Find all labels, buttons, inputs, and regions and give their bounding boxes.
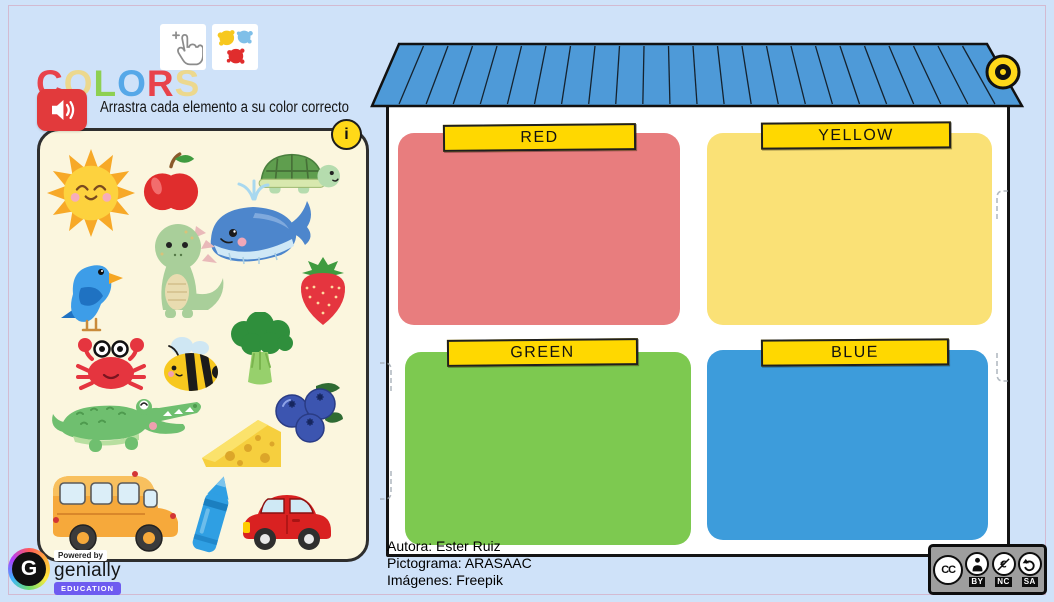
draggable-bus[interactable] [45,462,184,555]
zone-label-green: GREEN [447,338,638,367]
audio-button[interactable] [37,89,87,131]
cc-by-icon [965,552,989,576]
zone-label-green-text: GREEN [510,343,575,362]
credit-pictogram: Pictograma: ARASAAC [387,555,532,572]
wall-mark [376,468,396,504]
items-tray [37,128,369,562]
dropzone-yellow[interactable] [707,133,992,325]
zone-label-blue-text: BLUE [831,343,879,361]
genially-logo-letter: G [12,552,46,586]
zone-label-yellow: YELLOW [761,121,951,149]
draggable-crayon[interactable] [182,474,245,555]
draggable-cheese[interactable] [200,414,283,472]
draggable-crocodile[interactable] [47,382,209,460]
draggable-car[interactable] [238,482,337,553]
dropzone-green[interactable] [405,352,691,545]
zone-label-red: RED [443,123,636,152]
education-badge: EDUCATION [54,582,121,595]
instruction-text: Arrastra cada elemento a su color correc… [100,99,349,117]
dropzone-blue[interactable] [707,350,988,540]
cc-nc-icon: € [992,552,1016,576]
credit-author: Autora: Ester Ruiz [387,538,532,555]
credit-images: Imágenes: Freepik [387,572,532,589]
draggable-apple[interactable] [142,148,200,220]
genially-logo-mark: G [8,548,50,590]
info-button[interactable]: i [331,119,362,150]
paint-splats-icon [212,24,258,70]
cc-icon-text: CC [941,564,955,576]
genially-brand: genially [54,561,121,581]
dropzone-red[interactable] [398,133,680,325]
click-hand-icon [160,24,206,70]
house-roof [368,40,1028,110]
draggable-strawberry[interactable] [292,255,354,327]
wall-mark [992,186,1012,222]
draggable-sun[interactable] [47,147,135,239]
cc-sa-label: SA [1022,577,1038,587]
cc-license[interactable]: CC BY € NC SA [928,544,1047,595]
wall-mark [376,358,396,394]
cc-nc-label: NC [995,577,1012,587]
cc-icon: CC [933,555,963,585]
zone-label-yellow-text: YELLOW [818,126,894,145]
roof-ornament [984,53,1022,91]
draggable-dinosaur[interactable] [130,216,228,330]
zone-label-blue: BLUE [761,338,949,366]
cc-by-label: BY [969,577,985,587]
wall-mark [992,350,1012,386]
credits: Autora: Ester Ruiz Pictograma: ARASAAC I… [387,538,532,589]
cc-sa-icon [1018,552,1042,576]
speaker-icon [45,95,79,125]
game-stage: COLORS Arrastra cada elemento a su color… [0,0,1054,602]
genially-logo[interactable]: G Powered by genially EDUCATION [8,548,121,595]
zone-label-red-text: RED [520,128,558,146]
draggable-bird[interactable] [57,250,127,334]
